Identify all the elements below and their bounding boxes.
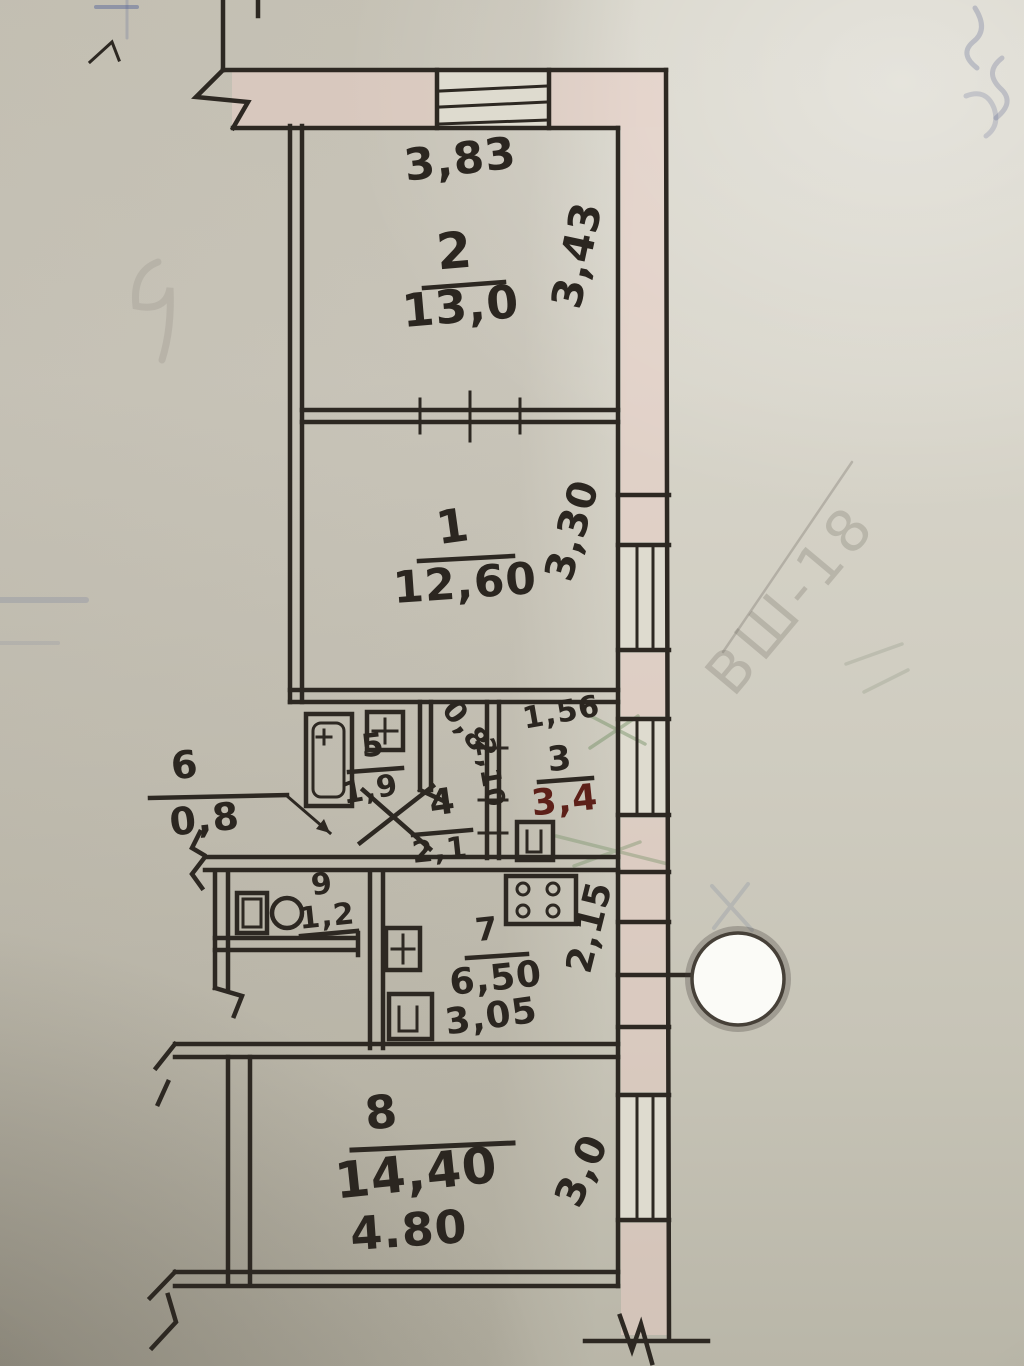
dim-room8-depth: 3,0 <box>546 1128 618 1214</box>
plan-drawing: ВШ-18 <box>0 0 1024 1366</box>
floor-plan-photo: ВШ-18 <box>0 0 1024 1366</box>
room2-area: 13,0 <box>400 274 522 338</box>
dim-room2-depth: 3,43 <box>542 197 612 312</box>
room5-number: 5 <box>359 725 386 765</box>
stove-icon <box>506 876 576 924</box>
room2-number: 2 <box>434 221 475 282</box>
room-labels: 3,83 2 13,0 3,43 1 12,60 3,30 0,8 2,10 1… <box>167 127 621 1261</box>
room4-area: 2,1 <box>410 830 470 871</box>
dim-room8-width: 4.80 <box>348 1199 469 1261</box>
room9-number: 9 <box>309 866 334 903</box>
dim-hall-length: 2,10 <box>468 735 511 810</box>
room6-leader <box>287 796 330 833</box>
pencil-note: ВШ-18 <box>692 491 890 708</box>
room4-number: 4 <box>427 780 459 824</box>
room1-number: 1 <box>433 497 473 555</box>
room6-number: 6 <box>169 742 201 789</box>
water-heater-icon <box>389 994 432 1039</box>
dim-room1-depth: 3,30 <box>536 475 609 586</box>
dim-room3-width: 1,56 <box>520 689 603 737</box>
redaction-circle <box>688 929 788 1029</box>
room1-area: 12,60 <box>391 553 538 614</box>
room3-area: 3,4 <box>529 777 600 825</box>
room6-area: 0,8 <box>167 794 242 845</box>
kitchen-sink-icon <box>386 928 420 970</box>
room8-area: 14,40 <box>332 1136 500 1211</box>
room3-number: 3 <box>545 738 574 780</box>
room8-number: 8 <box>362 1084 400 1141</box>
room7-number: 7 <box>473 909 500 949</box>
dim-top-width: 3,83 <box>401 127 519 191</box>
toilet-icon <box>237 893 302 933</box>
bidet-icon <box>517 822 553 860</box>
room9-area: 1,2 <box>297 896 357 937</box>
dim-kitchen-depth: 2,15 <box>559 877 621 977</box>
